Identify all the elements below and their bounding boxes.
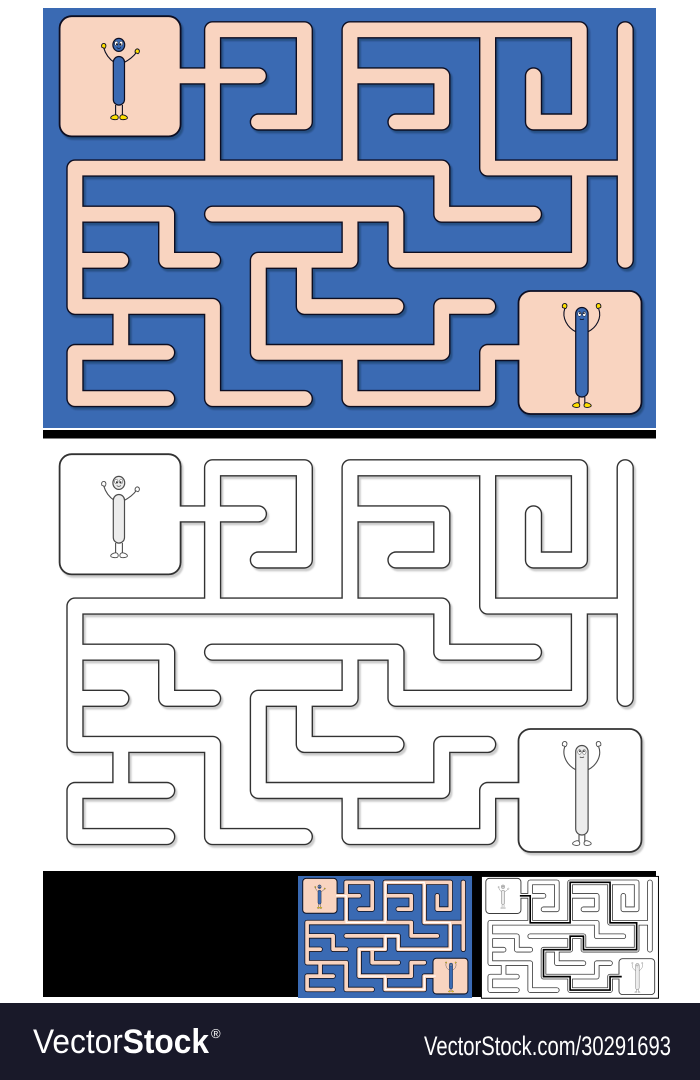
svg-text:®: ® <box>211 1026 221 1041</box>
svg-text:VectorStock: VectorStock <box>33 1023 210 1061</box>
svg-text:VectorStock.com/30291693: VectorStock.com/30291693 <box>424 1031 671 1061</box>
